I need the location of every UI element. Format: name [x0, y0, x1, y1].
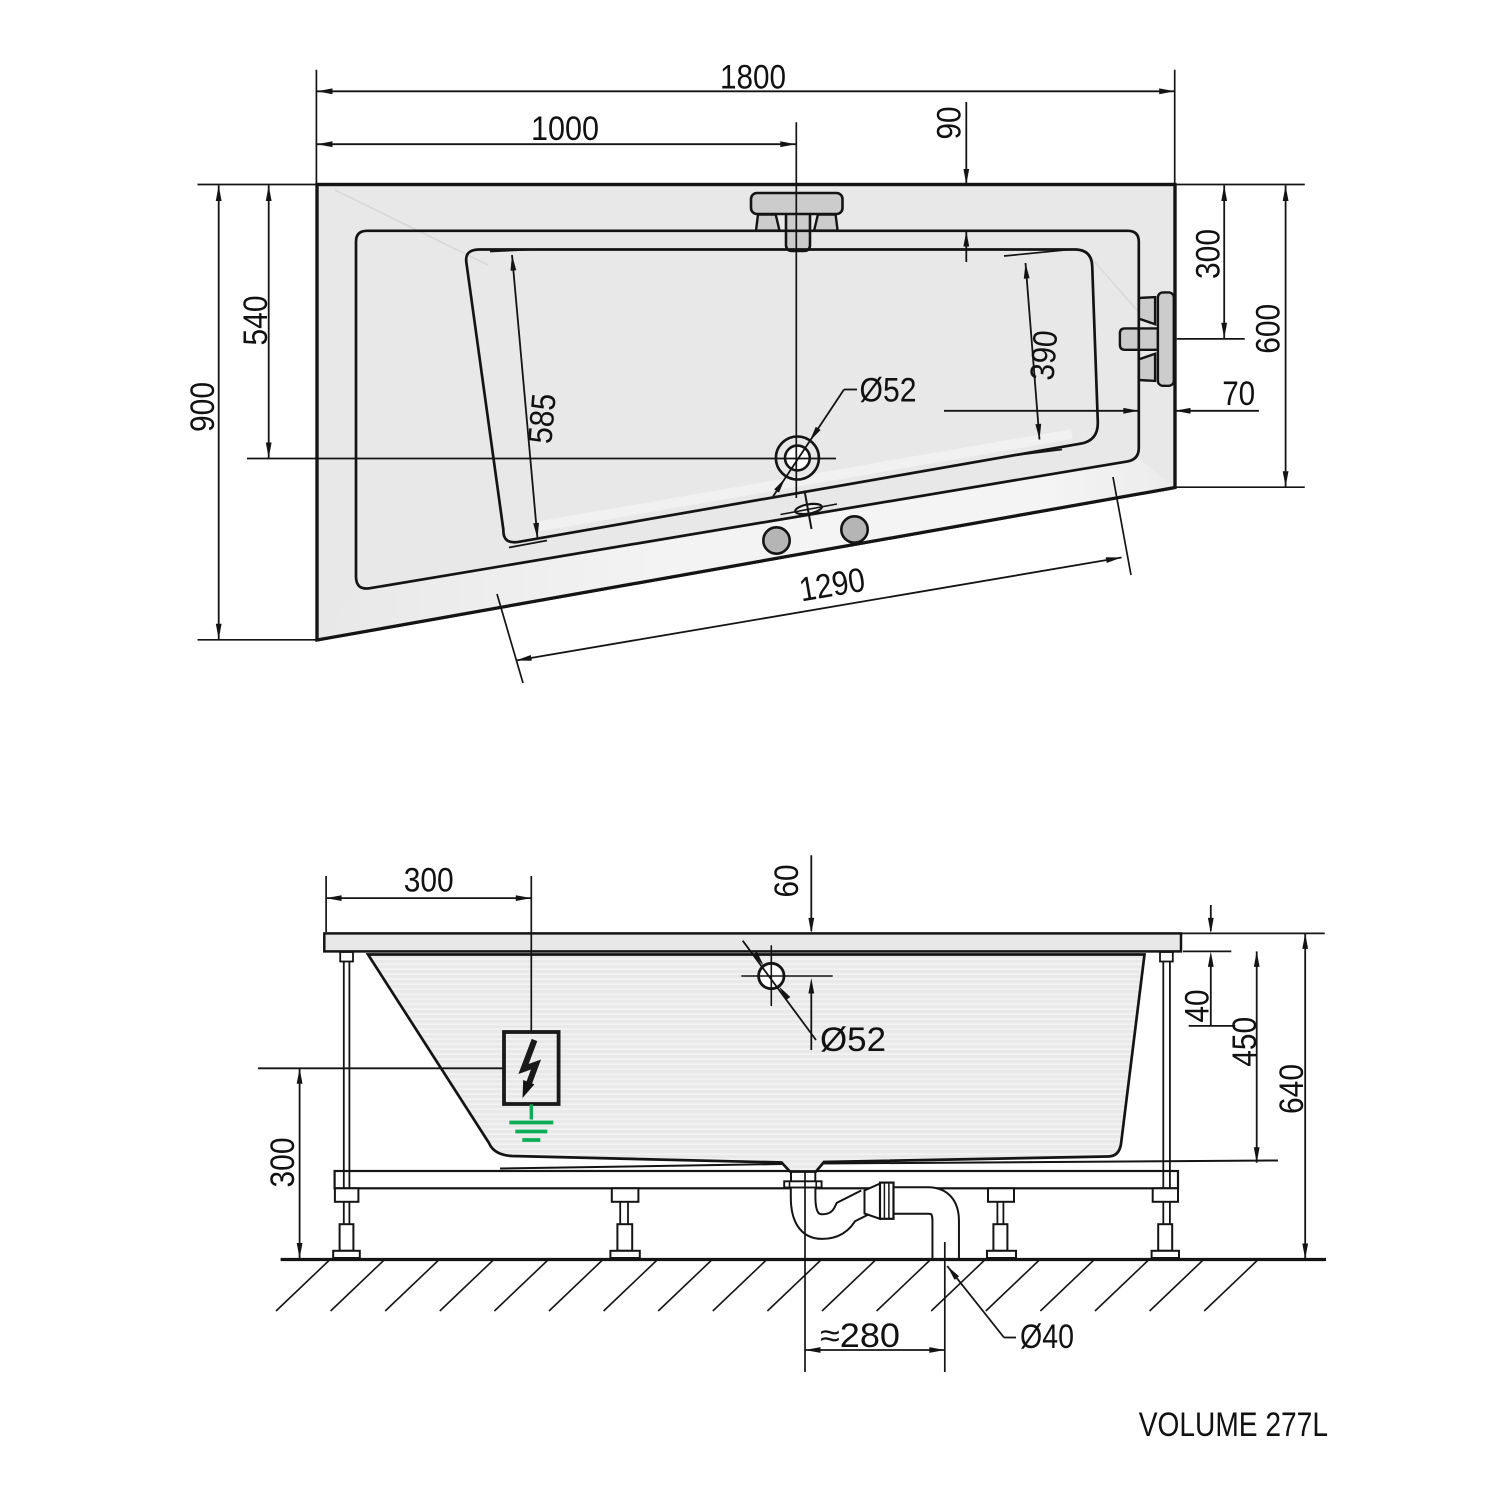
svg-text:640: 640 — [1273, 1064, 1311, 1114]
svg-text:VOLUME 277L: VOLUME 277L — [1139, 1406, 1328, 1444]
svg-text:600: 600 — [1250, 304, 1288, 354]
svg-text:1800: 1800 — [720, 58, 786, 96]
svg-text:390: 390 — [1023, 329, 1065, 382]
svg-text:300: 300 — [264, 1138, 302, 1188]
svg-text:Ø52: Ø52 — [860, 372, 917, 410]
svg-text:70: 70 — [1222, 375, 1255, 413]
svg-text:40: 40 — [1179, 990, 1217, 1023]
svg-text:90: 90 — [931, 107, 969, 140]
svg-text:1000: 1000 — [531, 110, 599, 148]
svg-text:≈280: ≈280 — [820, 1317, 900, 1355]
svg-text:300: 300 — [1190, 229, 1228, 279]
svg-text:Ø40: Ø40 — [1020, 1318, 1074, 1356]
svg-text:900: 900 — [184, 382, 222, 432]
svg-text:60: 60 — [768, 865, 806, 898]
svg-text:Ø52: Ø52 — [820, 1021, 886, 1059]
svg-text:585: 585 — [521, 392, 563, 445]
svg-text:450: 450 — [1226, 1017, 1264, 1067]
svg-text:300: 300 — [404, 862, 454, 900]
svg-text:540: 540 — [237, 296, 275, 346]
